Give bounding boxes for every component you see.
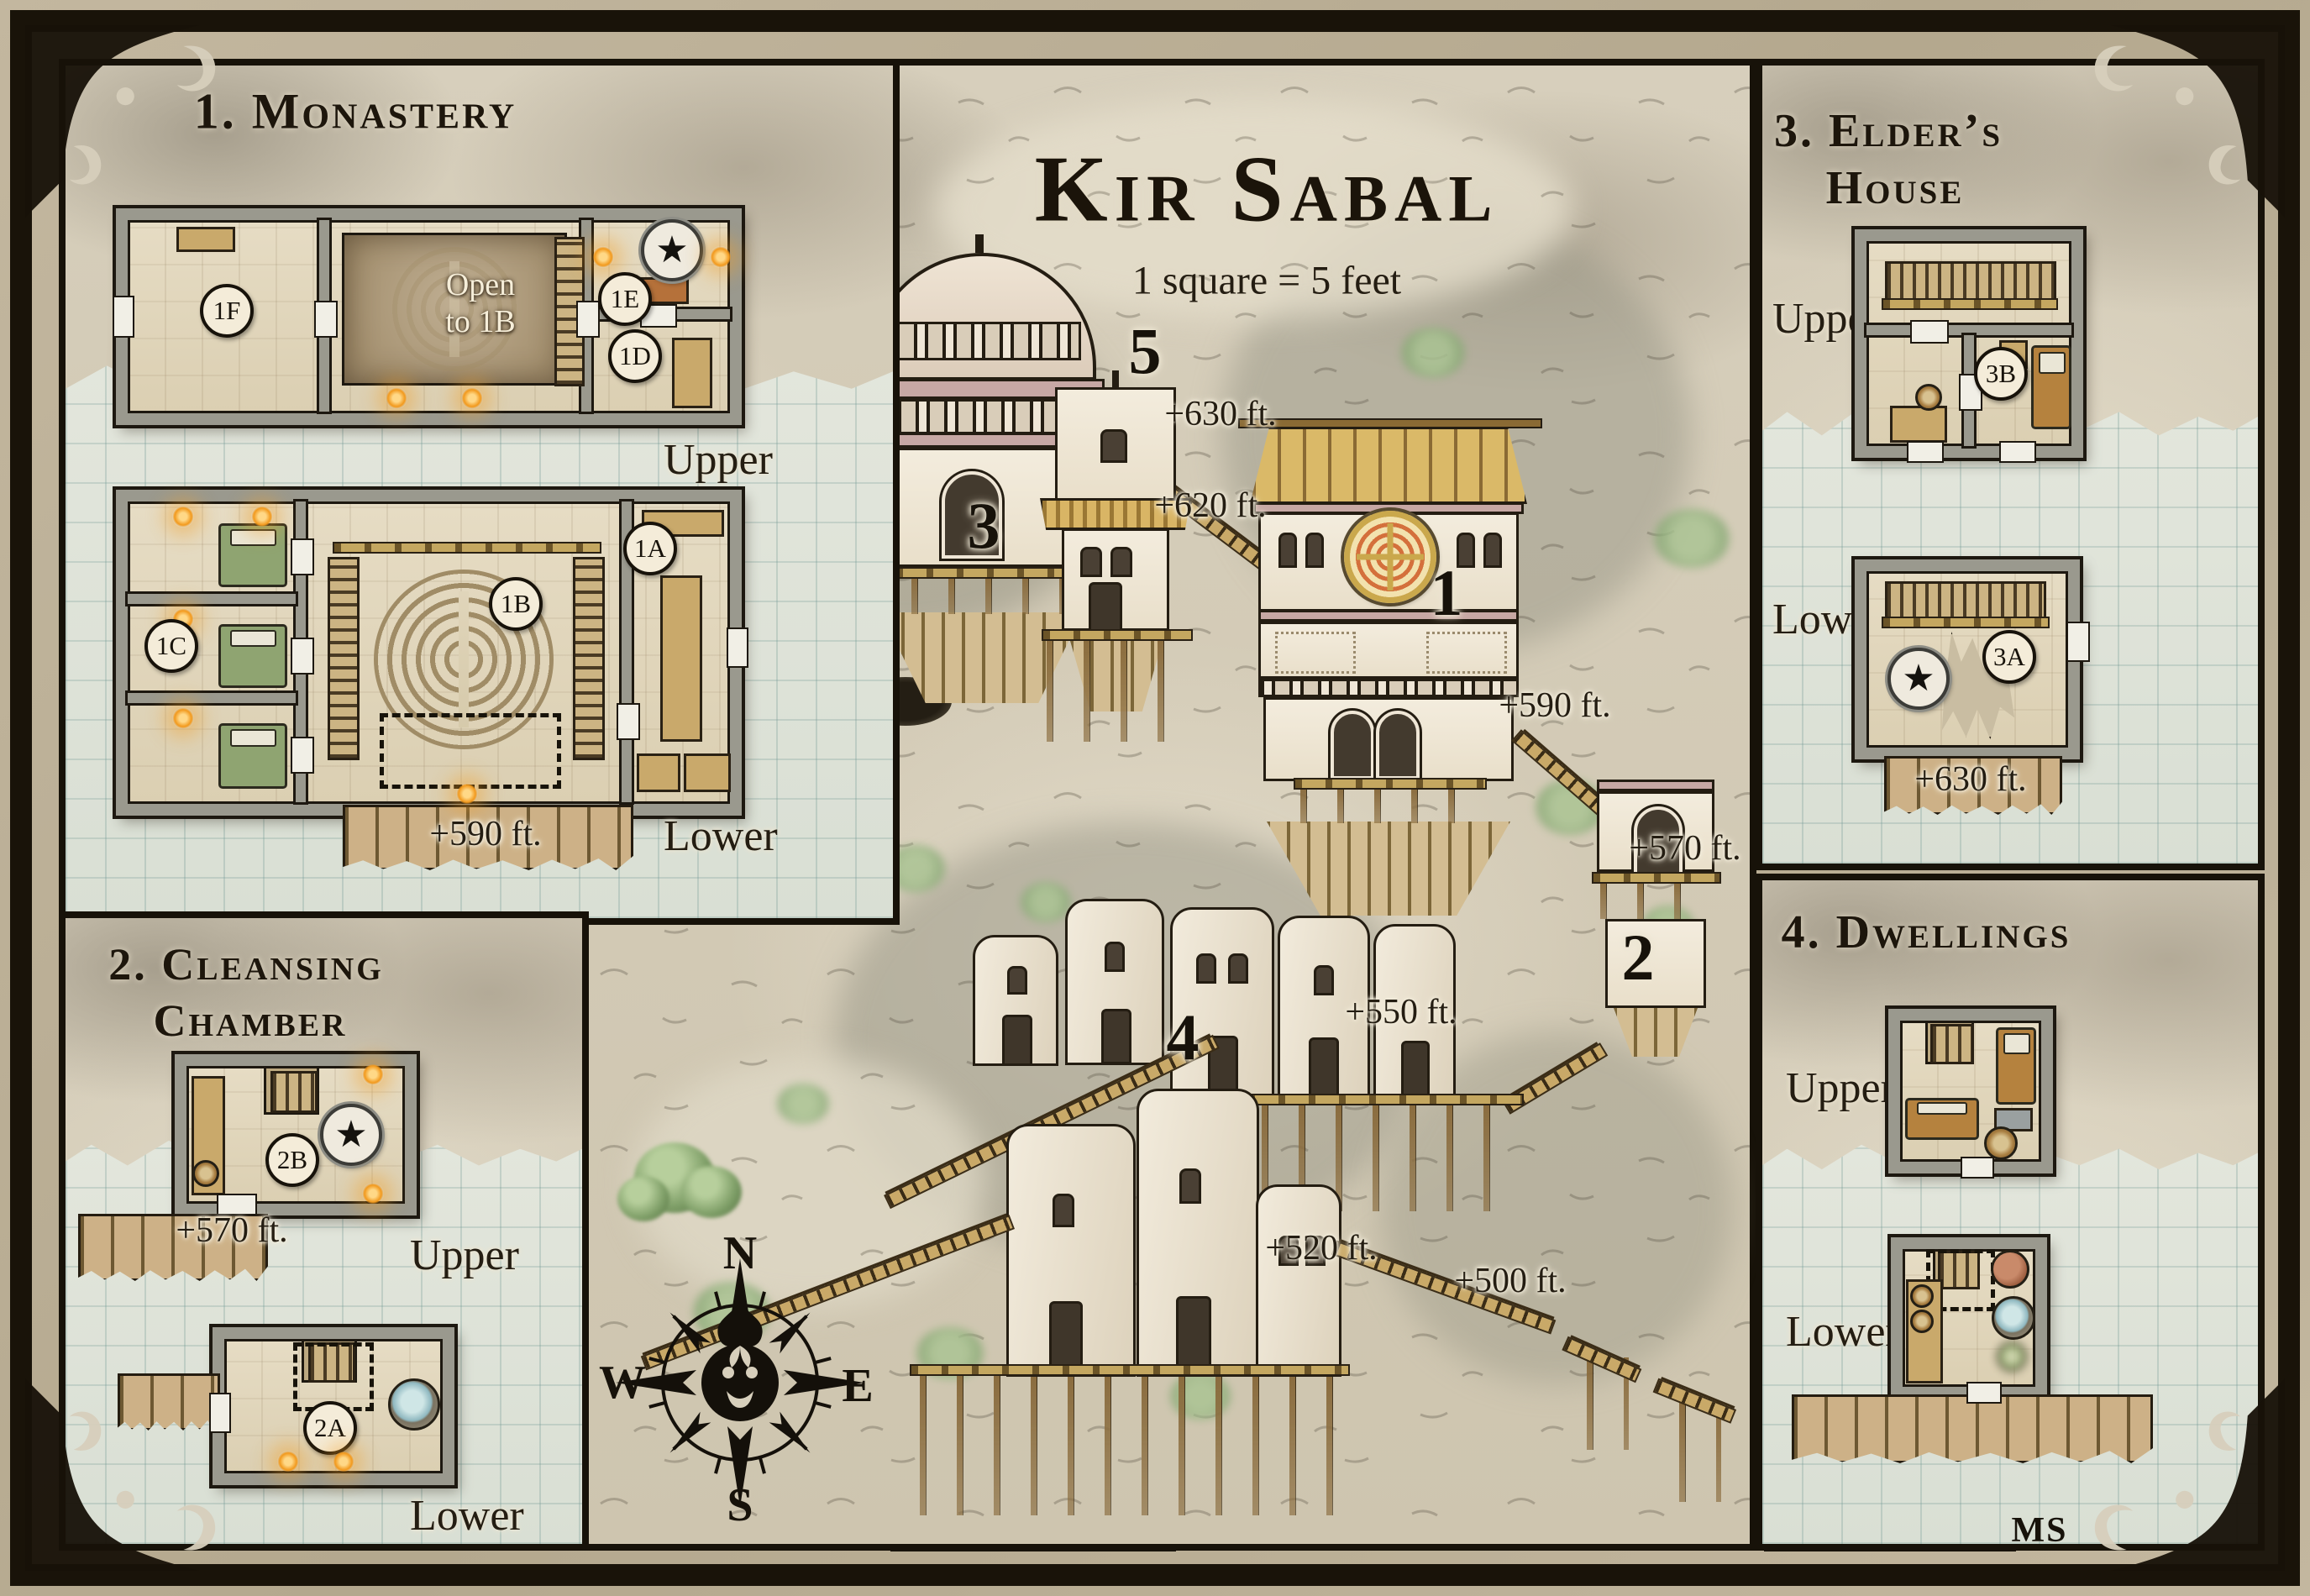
- bed: [1905, 1098, 1979, 1140]
- bed: [218, 624, 287, 688]
- door: [2066, 622, 2090, 662]
- elders-upper-plan: 3B: [1855, 229, 2083, 458]
- map-marker-4: 4: [1167, 1000, 1200, 1075]
- torch: [461, 387, 483, 409]
- door: [209, 1393, 231, 1433]
- door: [291, 737, 314, 774]
- map-scale-note: 1 square = 5 feet: [1132, 258, 1401, 304]
- window: [1314, 965, 1334, 995]
- loft-stair: [1885, 261, 2056, 302]
- compass-rose: N S W E: [606, 1240, 874, 1517]
- frame-rule: [1764, 1547, 2016, 1551]
- dwellings-lower-plan: [1891, 1237, 2047, 1399]
- vegetation: [1021, 882, 1071, 922]
- dock-platform: [118, 1373, 220, 1431]
- labyrinth-emblem: [1344, 511, 1436, 603]
- room-badge-1c: 1C: [144, 619, 198, 673]
- vegetation: [1654, 509, 1730, 568]
- elders-elevation: +630 ft.: [1914, 759, 2026, 800]
- green-pot: [1997, 1341, 2027, 1372]
- dome-finial: [975, 234, 984, 253]
- cleansing-panel-title-line1: 2. Cleansing: [108, 938, 384, 990]
- arch-window: [1331, 711, 1374, 780]
- door: [727, 627, 748, 668]
- railing: [333, 542, 601, 554]
- torch: [251, 506, 273, 528]
- elevation-570: +570 ft.: [1629, 828, 1740, 869]
- door: [1309, 1037, 1339, 1098]
- star-badge: ★: [320, 1104, 382, 1166]
- elevation-500: +500 ft.: [1454, 1261, 1566, 1301]
- stilts: [1047, 639, 1186, 742]
- door: [1966, 1382, 2002, 1404]
- ladder: [270, 1071, 318, 1113]
- elevation-620: +620 ft.: [1154, 486, 1266, 526]
- room-badge-3b: 3B: [1974, 347, 2028, 401]
- cleansing-elevation: +570 ft.: [176, 1210, 287, 1251]
- jug: [192, 1160, 219, 1187]
- monastery-exterior: [1250, 417, 1527, 849]
- monastery-panel: 1. Monastery Open to 1B 1F ★ 1E 1D: [59, 59, 900, 925]
- interior-wall: [128, 594, 296, 604]
- dwellings-upper-label: Upper: [1786, 1063, 1895, 1113]
- pot: [1910, 1310, 1934, 1333]
- door: [314, 301, 338, 338]
- door: [1101, 1009, 1131, 1064]
- trim-band: [1258, 610, 1519, 622]
- slit-window: [1483, 533, 1502, 568]
- bed: [2031, 345, 2071, 429]
- door: [1002, 1015, 1032, 1066]
- platform: [1042, 629, 1193, 641]
- door: [576, 301, 600, 338]
- monastery-upper-plan: Open to 1B 1F ★ 1E 1D: [116, 208, 742, 425]
- scale: [1915, 384, 1942, 411]
- dwellings-panel: 4. Dwellings Upper Lower: [1756, 874, 2265, 1551]
- tree: [617, 1176, 669, 1221]
- shelf: [176, 227, 235, 252]
- torch: [172, 707, 194, 729]
- cleansing-lower-plan: 2A: [213, 1327, 454, 1485]
- torch: [362, 1063, 384, 1085]
- balcony-posts: [1300, 788, 1477, 823]
- platform-posts: [1600, 882, 1711, 919]
- monastery-lower-plan: 1C 1B 1A: [116, 490, 742, 816]
- dwellings-lower-label: Lower: [1786, 1307, 1900, 1357]
- map-marker-1: 1: [1431, 555, 1463, 631]
- room-badge-2b: 2B: [265, 1133, 319, 1187]
- door: [1910, 320, 1949, 344]
- interior-wall: [128, 693, 296, 703]
- room-badge-1f: 1F: [200, 284, 254, 338]
- loft-stair: [1885, 581, 2046, 620]
- long-table: [660, 575, 702, 742]
- door: [291, 538, 314, 575]
- monastery-elevation: +590 ft.: [429, 814, 541, 854]
- lower-block: [1605, 919, 1706, 1008]
- balcony: [1294, 778, 1487, 790]
- map-sheet: Kir Sabal 1 square = 5 feet 3 +630 ft.: [0, 0, 2310, 1596]
- torch: [710, 246, 732, 268]
- window: [1100, 429, 1127, 463]
- monastery-upper-label: Upper: [664, 435, 773, 485]
- dome-roof: [868, 253, 1096, 381]
- boardwalk-520: [910, 1364, 1350, 1376]
- cleansing-upper-plan: ★ 2B: [175, 1054, 417, 1215]
- window: [1179, 1168, 1201, 1204]
- wall-panel: [1275, 632, 1356, 674]
- elevation-590: +590 ft.: [1499, 685, 1610, 726]
- dome-arcade: [883, 322, 1081, 360]
- compass-east-label: E: [842, 1359, 873, 1413]
- cleansing-panel: 2. Cleansing Chamber ★ 2B +570 ft. Upper…: [59, 911, 589, 1551]
- wall-panel: [1426, 632, 1507, 674]
- bed: [218, 523, 287, 587]
- star-badge: ★: [1887, 648, 1950, 710]
- compass-north-label: N: [723, 1226, 757, 1280]
- pot: [1984, 1126, 2018, 1160]
- door: [617, 703, 640, 740]
- compass-rose-icon: [606, 1240, 874, 1517]
- desk: [672, 338, 712, 408]
- artist-signature: MS: [2012, 1510, 2068, 1551]
- window: [1228, 953, 1248, 984]
- bed: [1996, 1027, 2036, 1105]
- ladder: [1930, 1024, 1974, 1064]
- elders-panel-title-line2: House: [1826, 161, 1965, 215]
- elders-panel: 3. Elder’s House Upper 3B Lower ★ 3A: [1756, 59, 2265, 870]
- room-badge-1a: 1A: [623, 522, 677, 575]
- cleansing-upper-label: Upper: [410, 1231, 519, 1280]
- open-note-line2: to 1B: [396, 304, 564, 341]
- railing: [1882, 298, 2058, 310]
- boardwalk-stilts: [920, 1374, 1336, 1515]
- trim-band: [1597, 780, 1714, 791]
- window: [1110, 547, 1132, 577]
- dock-platform: [1792, 1394, 2153, 1463]
- dwelling-tower: [973, 935, 1058, 1066]
- door: [291, 638, 314, 675]
- compass-west-label: W: [599, 1356, 646, 1410]
- window: [1105, 942, 1125, 972]
- water-basin: [388, 1378, 440, 1431]
- torch: [386, 387, 407, 409]
- elevation-520: +520 ft.: [1265, 1228, 1377, 1268]
- compass-south-label: S: [727, 1478, 753, 1532]
- dwelling-tower: [1065, 899, 1164, 1065]
- boardwalk-550: [1216, 1094, 1524, 1105]
- railing: [1882, 617, 2050, 628]
- window: [1080, 547, 1102, 577]
- workbench: [637, 753, 680, 792]
- bed: [218, 723, 287, 789]
- workbench: [684, 753, 731, 792]
- open-note: Open to 1B: [396, 267, 564, 340]
- torch: [592, 246, 614, 268]
- room-badge-1b: 1B: [489, 577, 543, 631]
- monastery-lower-label: Lower: [664, 811, 778, 861]
- dwellings-upper-plan: [1888, 1009, 2053, 1173]
- door: [1999, 441, 2036, 463]
- cleansing-chamber-exterior: [1597, 780, 1714, 1044]
- dwelling-tower: [1137, 1089, 1259, 1377]
- torch: [277, 1451, 299, 1473]
- room-badge-3a: 3A: [1982, 630, 2036, 684]
- interior-wall: [1866, 325, 2071, 335]
- monastery-panel-title: 1. Monastery: [194, 83, 517, 141]
- map-title: Kir Sabal: [1035, 136, 1499, 244]
- room-badge-1d: 1D: [608, 329, 662, 383]
- water-basin: [1992, 1296, 2035, 1340]
- table: [1890, 406, 1947, 443]
- door: [1089, 582, 1122, 634]
- open-note-line1: Open: [396, 267, 564, 304]
- elevation-630: +630 ft.: [1164, 394, 1276, 434]
- carved-band: [1258, 679, 1519, 697]
- map-marker-2: 2: [1622, 920, 1655, 995]
- trapdoor-outline: [380, 713, 561, 789]
- door: [1176, 1296, 1211, 1375]
- map-marker-5: 5: [1129, 313, 1162, 389]
- frame-rule: [890, 1547, 1176, 1551]
- tower-5-exterior: [1040, 381, 1191, 750]
- dwellings-panel-title: 4. Dwellings: [1782, 906, 2071, 959]
- cleansing-lower-label: Lower: [410, 1491, 524, 1541]
- window: [1053, 1194, 1074, 1227]
- torch: [456, 783, 478, 805]
- slit-window: [1278, 533, 1297, 568]
- dwelling-tower: [1256, 1184, 1341, 1377]
- window: [1007, 966, 1027, 995]
- room-badge-2a: 2A: [303, 1401, 357, 1455]
- torch: [362, 1183, 384, 1205]
- tower-finial: [1112, 370, 1119, 387]
- door: [1961, 1157, 1994, 1179]
- vegetation: [777, 1084, 829, 1124]
- arch-window: [1376, 711, 1420, 780]
- door: [1907, 441, 1944, 463]
- torch: [333, 1451, 354, 1473]
- staircase: [573, 557, 605, 760]
- cleansing-panel-title-line2: Chamber: [154, 995, 348, 1047]
- pot: [1910, 1284, 1934, 1308]
- elders-panel-title-line1: 3. Elder’s: [1774, 104, 2003, 158]
- staircase: [328, 557, 360, 760]
- platform: [1592, 872, 1721, 884]
- slit-window: [1305, 533, 1324, 568]
- elders-lower-plan: ★ 3A: [1855, 559, 2080, 759]
- map-marker-3: 3: [968, 488, 1000, 564]
- vegetation: [1401, 328, 1465, 378]
- entry-door: [113, 296, 134, 338]
- window: [1196, 953, 1216, 984]
- tree: [681, 1166, 742, 1218]
- door: [1401, 1041, 1430, 1098]
- paint-bowl: [1991, 1250, 2029, 1289]
- torch: [172, 506, 194, 528]
- wooden-roof: [1250, 427, 1527, 504]
- dwelling-tower: [1006, 1124, 1136, 1377]
- room-badge-1e: 1E: [598, 272, 652, 326]
- elevation-550: +550 ft.: [1345, 992, 1457, 1032]
- star-badge: ★: [641, 219, 703, 281]
